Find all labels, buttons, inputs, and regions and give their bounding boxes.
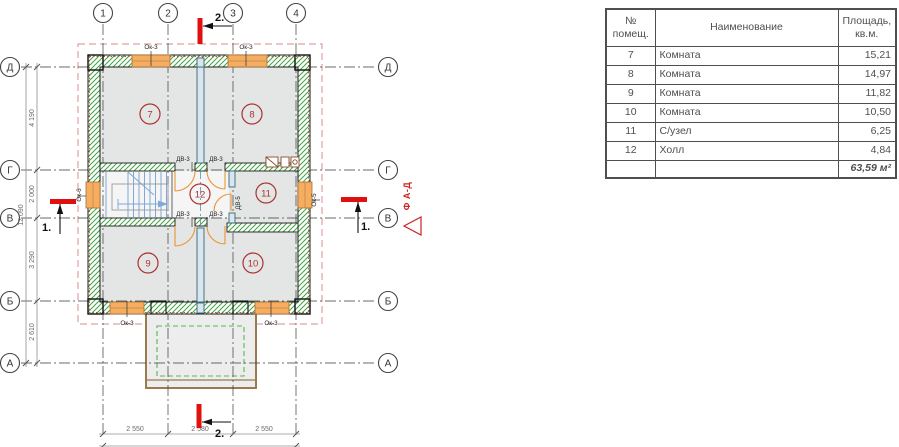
- dimension-label: 2 550: [255, 426, 273, 433]
- table-row: 11 С/узел 6,25: [606, 123, 896, 142]
- door-label: ДВ-5: [236, 196, 242, 210]
- table-row: 7 Комната 15,21: [606, 47, 896, 66]
- dimension-label: 2 000: [29, 185, 36, 203]
- window-label: Ок-3: [144, 44, 158, 51]
- room-area-cell: 6,25: [838, 123, 896, 142]
- room-area-cell: 4,84: [838, 142, 896, 161]
- bathroom-fixtures-icon: [266, 157, 299, 167]
- room-number: 9: [145, 259, 150, 270]
- header-room-name: Наименование: [655, 9, 838, 47]
- table-row: 8 Комната 14,97: [606, 66, 896, 85]
- table-header-row: № помещ. Наименование Площадь, кв.м.: [606, 9, 896, 47]
- room-number-cell: 10: [606, 104, 655, 123]
- facade-triangle-icon: [404, 217, 421, 235]
- window-label: Ок-3: [120, 320, 134, 327]
- room-number-cell: 11: [606, 123, 655, 142]
- axis-label: 4: [293, 9, 299, 20]
- table-total-row: 63,59 м²: [606, 161, 896, 179]
- left-dimensions: 4 190 2 000 3 290 2 610 12 090: [18, 63, 40, 367]
- room-name-cell: Комната: [655, 85, 838, 104]
- dimension-label: 4 190: [29, 109, 36, 127]
- room-number: 10: [248, 259, 259, 270]
- door-label: ДВ-3: [209, 157, 223, 163]
- table-row: 12 Холл 4,84: [606, 142, 896, 161]
- window-label: Ок-3: [239, 44, 253, 51]
- axis-label: В: [7, 214, 14, 225]
- room-number-cell: 7: [606, 47, 655, 66]
- room-name-cell: Комната: [655, 104, 838, 123]
- section-label: 2.: [215, 12, 224, 24]
- dimension-label: 12 090: [18, 204, 25, 226]
- axis-label: Г: [7, 166, 13, 177]
- axis-label: 3: [230, 9, 236, 20]
- room-name-cell: Комната: [655, 47, 838, 66]
- axis-label: Д: [385, 63, 392, 74]
- room-area-cell: 11,82: [838, 85, 896, 104]
- window-label: Ок-5: [311, 193, 318, 207]
- axis-label: Д: [7, 63, 14, 74]
- axis-label: А: [385, 359, 392, 370]
- section-mark-bottom: 2.: [197, 404, 232, 440]
- dimension-label: 3 290: [29, 251, 36, 269]
- header-room-number: № помещ.: [606, 9, 655, 47]
- floor-plan-sheet: 1 2 3 4 Д Г В Б А Д Г В Б А 7 8 12 11 9 …: [0, 0, 899, 447]
- section-mark-right: 1.: [341, 197, 370, 233]
- floor-plan-drawing: 1 2 3 4 Д Г В Б А Д Г В Б А 7 8 12 11 9 …: [0, 0, 460, 447]
- room-number: 7: [147, 110, 152, 121]
- axis-label: 2: [165, 9, 171, 20]
- dimension-label: 2 610: [29, 323, 36, 341]
- room-area-cell: 14,97: [838, 66, 896, 85]
- section-label: 1.: [361, 221, 370, 233]
- room-name-cell: Комната: [655, 66, 838, 85]
- table-row: 9 Комната 11,82: [606, 85, 896, 104]
- axis-label: 1: [100, 9, 106, 20]
- room-area-cell: 15,21: [838, 47, 896, 66]
- section-label: 1.: [42, 222, 51, 234]
- room-number-cell: 8: [606, 66, 655, 85]
- total-area-cell: 63,59 м²: [838, 161, 896, 179]
- total-empty-cell: [655, 161, 838, 179]
- room-area-table: № помещ. Наименование Площадь, кв.м. 7 К…: [605, 8, 897, 179]
- room-number-cell: 9: [606, 85, 655, 104]
- room-number: 11: [261, 189, 271, 200]
- bottom-dimensions: 2 550 2 580 2 550 7 680: [99, 426, 300, 447]
- dimension-label: 2 550: [126, 426, 144, 433]
- header-room-area: Площадь, кв.м.: [838, 9, 896, 47]
- window-label: Ок-6: [76, 188, 83, 202]
- room-number-cell: 12: [606, 142, 655, 161]
- axis-label: А: [7, 359, 14, 370]
- table-row: 10 Комната 10,50: [606, 104, 896, 123]
- section-mark-left: 1.: [42, 199, 76, 234]
- facade-direction-marker: Ф А-Д: [402, 182, 421, 235]
- room-area-cell: 10,50: [838, 104, 896, 123]
- door-label: ДВ-3: [209, 212, 223, 218]
- axis-label: Г: [385, 166, 391, 177]
- room-name-cell: Холл: [655, 142, 838, 161]
- total-empty-cell: [606, 161, 655, 179]
- axis-label: Б: [385, 297, 392, 308]
- room-number: 8: [249, 110, 254, 121]
- axis-label: В: [385, 214, 392, 225]
- axis-label: Б: [7, 297, 14, 308]
- room-name-cell: С/узел: [655, 123, 838, 142]
- room-number: 12: [195, 190, 206, 201]
- porch: [146, 313, 256, 388]
- facade-label: Ф А-Д: [402, 182, 412, 211]
- window-label: Ок-3: [264, 320, 278, 327]
- section-label: 2.: [215, 428, 224, 440]
- door-label: ДВ-3: [176, 157, 190, 163]
- door-label: ДВ-3: [176, 212, 190, 218]
